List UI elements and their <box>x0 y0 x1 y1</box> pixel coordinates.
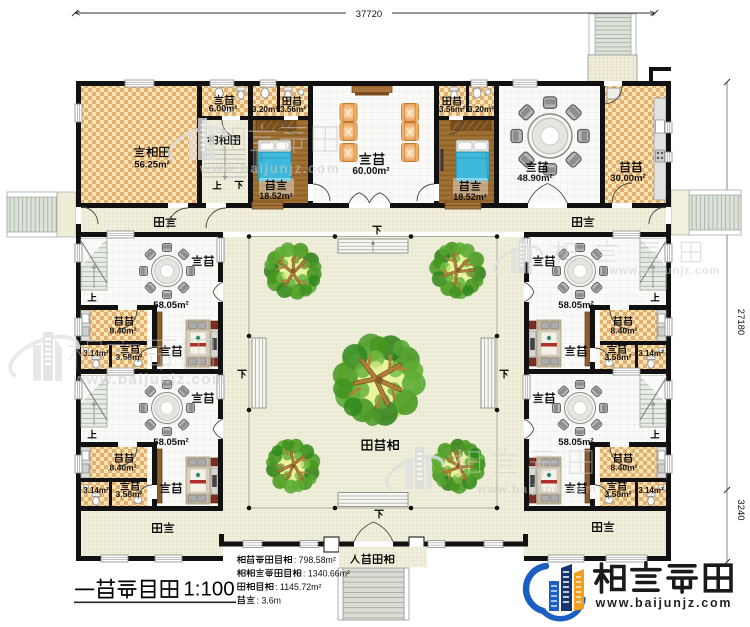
svg-text:3.56m²: 3.56m² <box>280 105 306 114</box>
svg-text:8.40m²: 8.40m² <box>611 326 638 336</box>
svg-text:3.20m²: 3.20m² <box>252 105 278 114</box>
svg-text:3.58m²: 3.58m² <box>605 352 632 362</box>
svg-text:58.05m²: 58.05m² <box>153 437 188 448</box>
svg-text:8.40m²: 8.40m² <box>110 463 137 473</box>
svg-text:18.52m²: 18.52m² <box>453 192 487 202</box>
svg-text:www.baijunjz.com: www.baijunjz.com <box>476 482 597 496</box>
svg-text:1:100: 1:100 <box>183 578 234 601</box>
svg-text:56.25m²: 56.25m² <box>134 160 169 171</box>
svg-text:8.40m²: 8.40m² <box>110 326 137 336</box>
svg-text:6.00m²: 6.00m² <box>209 104 238 114</box>
svg-text:3.56m²: 3.56m² <box>439 105 465 114</box>
svg-text:3.58m²: 3.58m² <box>116 352 143 362</box>
svg-text:www.baijunjz.com: www.baijunjz.com <box>72 371 226 388</box>
svg-text:48.90m²: 48.90m² <box>517 173 552 184</box>
svg-text:3.14m²: 3.14m² <box>83 486 109 495</box>
svg-text:www.baijunjz.com: www.baijunjz.com <box>595 596 733 610</box>
svg-text:www.baijunjz.com: www.baijunjz.com <box>609 265 721 277</box>
svg-text:3.58m²: 3.58m² <box>116 489 143 499</box>
svg-text:3.14m²: 3.14m² <box>638 486 664 495</box>
svg-text:58.05m²: 58.05m² <box>558 437 593 448</box>
svg-text:8.40m²: 8.40m² <box>611 463 638 473</box>
svg-text:18.52m²: 18.52m² <box>259 191 293 201</box>
svg-text:58.05m²: 58.05m² <box>558 300 593 311</box>
svg-text:3.20m²: 3.20m² <box>468 105 494 114</box>
svg-text:37720: 37720 <box>356 9 382 20</box>
svg-text:: 3.6m: : 3.6m <box>257 595 281 605</box>
svg-text:www.baijunjz.com: www.baijunjz.com <box>199 161 341 176</box>
svg-text:60.00m²: 60.00m² <box>352 166 390 177</box>
svg-text:3.14m²: 3.14m² <box>638 349 664 358</box>
svg-text:: 1340.66m²: : 1340.66m² <box>303 568 350 578</box>
svg-text:30.00m²: 30.00m² <box>610 173 645 184</box>
svg-text:58.05m²: 58.05m² <box>153 300 188 311</box>
svg-text:3240: 3240 <box>735 499 746 520</box>
svg-text:: 798.58m²: : 798.58m² <box>294 555 336 565</box>
svg-text:27180: 27180 <box>735 309 746 335</box>
svg-text:: 1145.72m²: : 1145.72m² <box>275 582 321 592</box>
svg-text:3.58m²: 3.58m² <box>605 489 632 499</box>
